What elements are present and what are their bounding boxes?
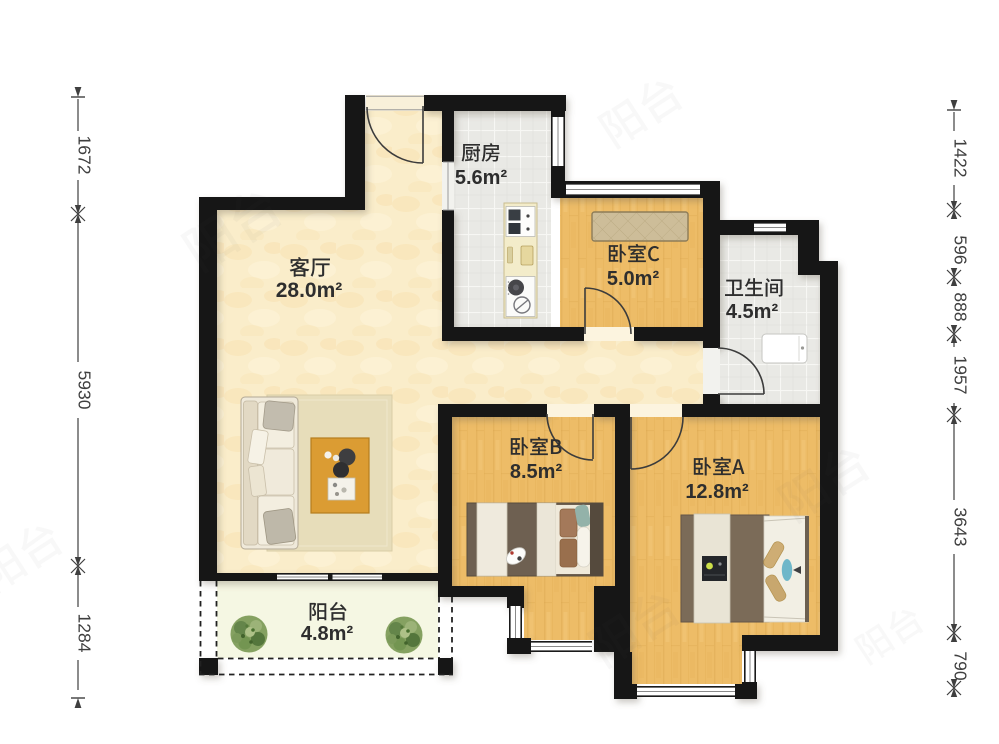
svg-text:8.5m²: 8.5m² bbox=[510, 461, 563, 483]
svg-text:28.0m²: 28.0m² bbox=[276, 279, 343, 302]
svg-text:1284: 1284 bbox=[75, 614, 95, 653]
svg-text:3643: 3643 bbox=[951, 508, 971, 547]
svg-text:5.0m²: 5.0m² bbox=[607, 268, 660, 290]
svg-text:1672: 1672 bbox=[75, 136, 95, 175]
svg-text:12.8m²: 12.8m² bbox=[685, 481, 749, 503]
svg-text:4.5m²: 4.5m² bbox=[726, 301, 779, 323]
svg-text:596: 596 bbox=[951, 235, 971, 264]
svg-text:4.8m²: 4.8m² bbox=[301, 623, 354, 645]
svg-text:888: 888 bbox=[951, 292, 971, 321]
svg-text:1422: 1422 bbox=[951, 139, 971, 178]
svg-text:790: 790 bbox=[951, 651, 971, 680]
svg-text:1957: 1957 bbox=[951, 356, 971, 395]
svg-text:5930: 5930 bbox=[75, 371, 95, 410]
svg-text:5.6m²: 5.6m² bbox=[455, 167, 508, 189]
